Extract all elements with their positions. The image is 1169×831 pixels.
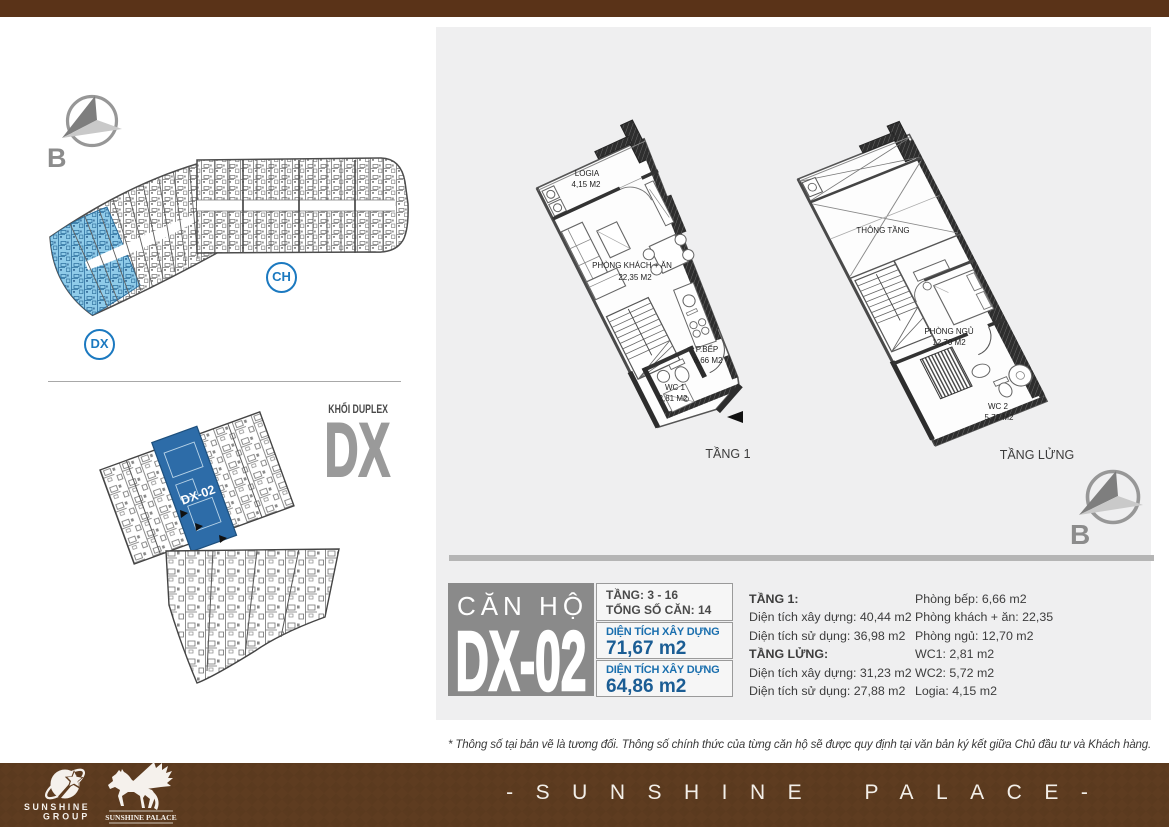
- svg-text:6,66 M2: 6,66 M2: [694, 356, 723, 365]
- svg-text:WC 2: WC 2: [988, 402, 1009, 411]
- svg-text:SUNSHINE: SUNSHINE: [24, 802, 90, 812]
- svg-text:P.BẾP: P.BẾP: [696, 344, 719, 354]
- svg-text:PHÒNG KHÁCH + ĂN: PHÒNG KHÁCH + ĂN: [592, 261, 672, 270]
- svg-text:GROUP: GROUP: [43, 812, 90, 822]
- svg-text:THÔNG TẦNG: THÔNG TẦNG: [856, 225, 909, 235]
- svg-text:2,81 M2: 2,81 M2: [659, 394, 688, 403]
- svg-text:SUNSHINE PALACE: SUNSHINE PALACE: [105, 813, 176, 822]
- svg-text:PHÒNG NGỦ: PHÒNG NGỦ: [924, 327, 974, 336]
- svg-text:LOGIA: LOGIA: [575, 169, 600, 178]
- svg-text:4,15 M2: 4,15 M2: [572, 180, 601, 189]
- svg-text:12,70 M2: 12,70 M2: [932, 338, 966, 347]
- svg-text:WC 1: WC 1: [665, 383, 686, 392]
- svg-text:22,35 M2: 22,35 M2: [618, 273, 652, 282]
- svg-text:5,72 M2: 5,72 M2: [985, 413, 1014, 422]
